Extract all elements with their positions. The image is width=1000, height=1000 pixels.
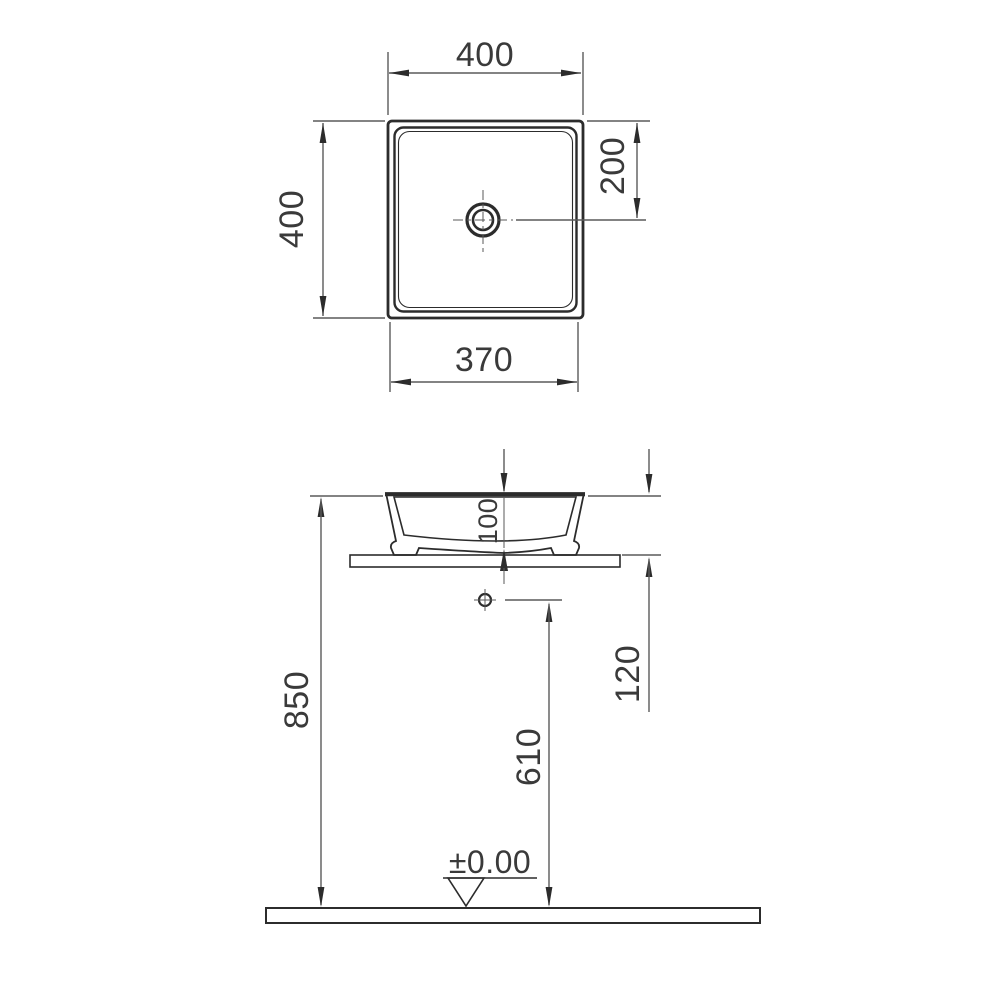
dim-inner-width: 370: [390, 322, 578, 392]
drain-hole: [453, 190, 513, 252]
side-view: 100 120 610: [266, 449, 760, 923]
dim-rim-height: 850: [278, 497, 324, 907]
dim-top-width: 400: [388, 36, 583, 115]
drawing-canvas: 400 400 200 370: [0, 0, 1000, 1000]
top-view: 400 400 200 370: [273, 36, 650, 392]
dim-left-height-label: 400: [273, 190, 311, 248]
countertop: [350, 555, 620, 567]
countertop-section: [350, 555, 620, 567]
level-symbol-triangle: [448, 878, 484, 906]
floor-level-symbol: ±0.00: [443, 844, 537, 906]
dim-left-height: 400: [273, 121, 385, 318]
dim-rim-height-label: 850: [278, 671, 316, 729]
dim-hole-offset-label: 120: [609, 645, 647, 703]
dim-basin-height-label: 100: [473, 498, 503, 545]
floor-level-label: ±0.00: [449, 844, 531, 880]
dim-outlet-height-label: 610: [510, 728, 548, 786]
technical-drawing-page: 400 400 200 370: [0, 0, 1000, 1000]
dim-drain-offset-label: 200: [594, 137, 632, 195]
floor-section: [266, 908, 760, 923]
dim-basin-height: 100: [473, 449, 508, 584]
dim-hole-offset: 120: [609, 449, 652, 712]
dim-top-width-label: 400: [456, 36, 514, 74]
dim-inner-width-label: 370: [455, 341, 513, 379]
